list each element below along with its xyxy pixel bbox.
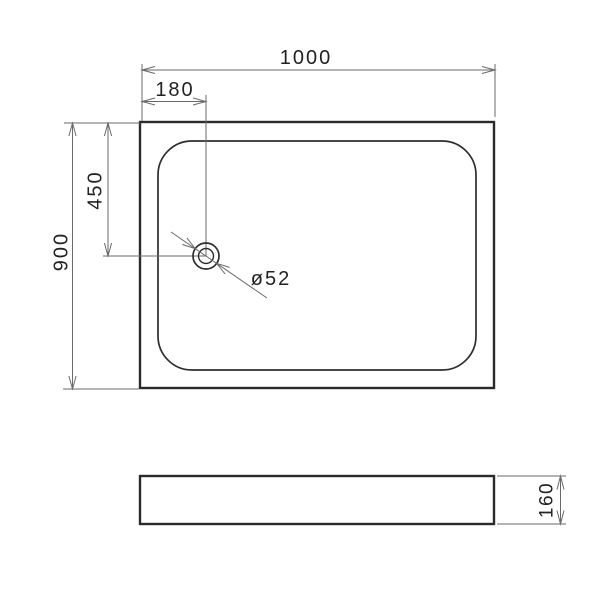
technical-drawing-canvas: ø52 1000 180 900 450 xyxy=(0,0,600,600)
dim-900-label: 900 xyxy=(51,232,73,271)
dim-180-label: 180 xyxy=(155,79,194,101)
shower-tray-drawing: ø52 1000 180 900 450 xyxy=(0,0,600,600)
side-view-outline xyxy=(140,476,494,524)
dim-depth-900: 900 xyxy=(51,123,77,389)
dim-drain-offset-180: 180 xyxy=(142,79,206,105)
dim-height-160: 160 xyxy=(497,476,566,524)
top-view: ø52 xyxy=(103,95,494,388)
side-view xyxy=(140,476,494,524)
dim-160-label: 160 xyxy=(537,482,558,518)
dim-width-1000: 1000 xyxy=(142,47,495,121)
dim-450-label: 450 xyxy=(85,170,107,209)
dim-1000-label: 1000 xyxy=(280,47,333,69)
dim-drain-diameter-label: ø52 xyxy=(251,268,291,290)
